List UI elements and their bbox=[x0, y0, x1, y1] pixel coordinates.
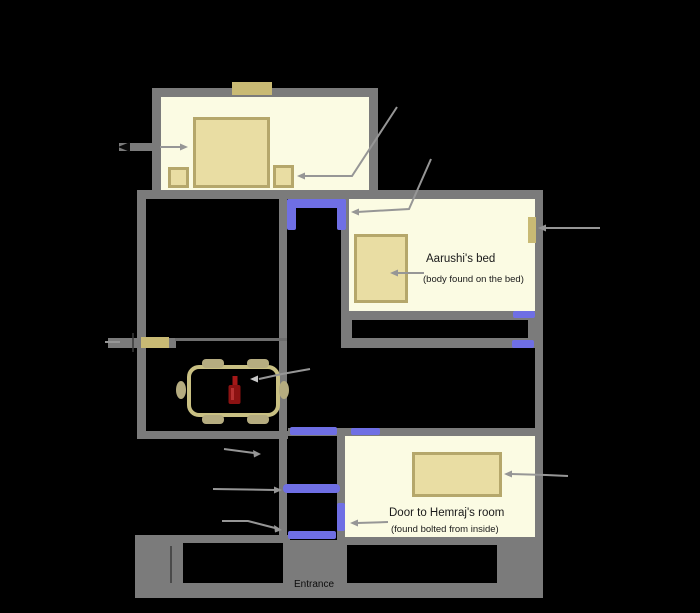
arrowhead bbox=[504, 471, 512, 478]
arrowhead bbox=[538, 225, 546, 232]
arrow-vestibule-middle-door bbox=[213, 489, 275, 490]
arrow-hemraj-bed bbox=[511, 474, 568, 476]
arrow-vestibule-bottom-door bbox=[222, 521, 275, 528]
arrowhead bbox=[350, 520, 358, 527]
arrow-nightstand bbox=[304, 107, 397, 176]
arrowhead bbox=[297, 173, 305, 180]
arrowhead bbox=[351, 209, 359, 216]
arrow-vestibule-top-door bbox=[224, 449, 254, 453]
dining-chair bbox=[279, 381, 289, 399]
dining-chair bbox=[247, 415, 269, 424]
label-aarushi-bed-note: (body found on the bed) bbox=[423, 274, 524, 285]
dining-chair bbox=[247, 359, 269, 368]
arrowhead bbox=[253, 450, 261, 458]
arrow-heads bbox=[118, 142, 546, 533]
whisky-bottle-icon bbox=[229, 376, 241, 404]
arrow-aarushi-door bbox=[357, 159, 431, 212]
arrowhead bbox=[274, 487, 282, 494]
annotation-overlay bbox=[0, 0, 700, 613]
floor-plan-diagram: Aarushi's bed (body found on the bed) Do… bbox=[0, 0, 700, 613]
arrowhead bbox=[274, 525, 282, 533]
dining-chair bbox=[202, 415, 224, 424]
label-aarushi-bed-title: Aarushi's bed bbox=[426, 253, 495, 265]
dining-chair bbox=[176, 381, 186, 399]
label-hemraj-door-title: Door to Hemraj's room bbox=[389, 507, 504, 519]
arrow-whisky-bottle bbox=[259, 369, 310, 379]
arrowhead-dark bbox=[118, 142, 130, 152]
arrowhead bbox=[390, 270, 398, 277]
arrowhead bbox=[250, 376, 258, 383]
arrow-lines bbox=[105, 107, 600, 528]
dining-chair bbox=[202, 359, 224, 368]
label-hemraj-door-note: (found bolted from inside) bbox=[391, 524, 499, 535]
arrowhead bbox=[180, 144, 188, 151]
arrow-hemraj-door bbox=[357, 522, 388, 523]
label-entrance: Entrance bbox=[285, 579, 343, 590]
